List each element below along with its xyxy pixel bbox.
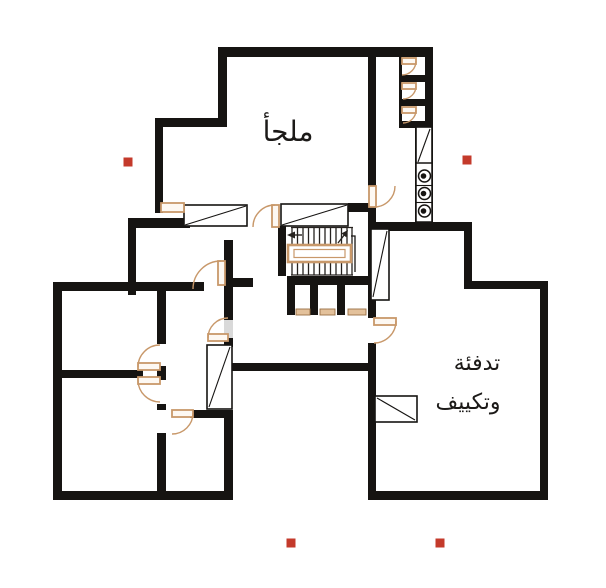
window-stairwell-tall <box>371 229 389 300</box>
window-sill <box>161 203 184 212</box>
wall-segment <box>157 433 166 491</box>
toilet-icon <box>419 205 431 217</box>
wall-segment <box>399 99 426 106</box>
door-leaf <box>272 205 279 227</box>
shelter-room-label: ملجأ <box>263 111 314 148</box>
door-wc-stall-2 <box>402 83 416 99</box>
door-heating-room <box>374 318 396 343</box>
door-leaf <box>138 363 160 370</box>
stair-landing <box>288 245 351 262</box>
door-arc <box>374 186 395 207</box>
wall-segment <box>53 282 204 291</box>
wall-segment <box>310 285 318 315</box>
door-leaf <box>374 318 396 325</box>
door-wc-stall-1 <box>402 58 416 75</box>
staircase <box>287 228 366 316</box>
hvac-louver <box>375 396 417 422</box>
wall-segment <box>287 276 295 315</box>
door-shelter-to-corridor <box>369 186 395 207</box>
hvac-room-label-line1: تدفئة <box>454 351 501 376</box>
wc-fixtures <box>416 163 432 222</box>
door-leaf <box>172 410 193 417</box>
wall-segment <box>53 282 62 500</box>
wall-segment <box>368 50 376 186</box>
wall-segment <box>155 118 163 213</box>
hvac-room-label-line2: وتكييف <box>436 390 501 415</box>
door-left-room-lower <box>138 377 160 402</box>
door-leaf <box>402 83 416 89</box>
wall-segment <box>230 363 376 371</box>
door-shelter-band <box>253 205 279 227</box>
threshold <box>348 309 366 315</box>
window-corridor-tall <box>207 345 232 409</box>
door-leaf <box>402 58 416 64</box>
wall-segment <box>155 118 227 127</box>
wall-segment <box>464 281 548 289</box>
stair-direction-arrow-left <box>287 232 302 239</box>
door-leaf <box>208 334 228 341</box>
red-marker-1 <box>463 156 472 165</box>
wall-segment <box>540 281 548 500</box>
landing-outer <box>288 245 351 262</box>
toilet-icon <box>419 188 431 200</box>
wall-segment <box>157 404 166 410</box>
red-marker-3 <box>436 539 445 548</box>
wall-segment <box>278 226 286 276</box>
wall-segment <box>128 218 190 228</box>
wall-segment <box>368 491 548 500</box>
door-bottom-room <box>172 410 193 434</box>
wall-segment <box>399 75 426 82</box>
threshold <box>296 309 310 315</box>
toilet-icon <box>419 170 431 182</box>
wall-segment <box>53 491 233 500</box>
floor-plan: ملجأ تدفئة وتكييف <box>0 0 606 588</box>
wall-segment <box>218 47 433 57</box>
door-leaf <box>402 107 416 113</box>
window-service-column <box>416 127 432 164</box>
wall-segment <box>464 222 472 289</box>
red-marker-0 <box>124 158 133 167</box>
door-wc-stall-3 <box>402 107 416 123</box>
wall-segment <box>337 285 345 315</box>
wall-segment <box>224 418 233 500</box>
floor-plan-canvas: ملجأ تدفئة وتكييف <box>0 0 606 588</box>
window-shelter-right <box>281 204 348 226</box>
wall-segment <box>399 57 402 125</box>
window-shelter-left <box>184 205 247 226</box>
wall-segment <box>190 410 233 418</box>
door-leaf <box>138 377 160 384</box>
door-leaf <box>369 186 376 207</box>
threshold <box>320 309 335 315</box>
door-left-room-upper <box>138 345 160 370</box>
stair-thresholds <box>296 309 366 315</box>
wall-segment <box>53 370 143 378</box>
door-corridor-mid <box>208 318 233 341</box>
wall-segment <box>157 291 166 344</box>
wall-segment <box>218 47 227 127</box>
wall-segment <box>233 278 253 287</box>
wall-segment <box>287 276 376 285</box>
red-marker-2 <box>287 539 296 548</box>
wall-segment <box>376 222 472 231</box>
door-leaf <box>218 261 225 285</box>
